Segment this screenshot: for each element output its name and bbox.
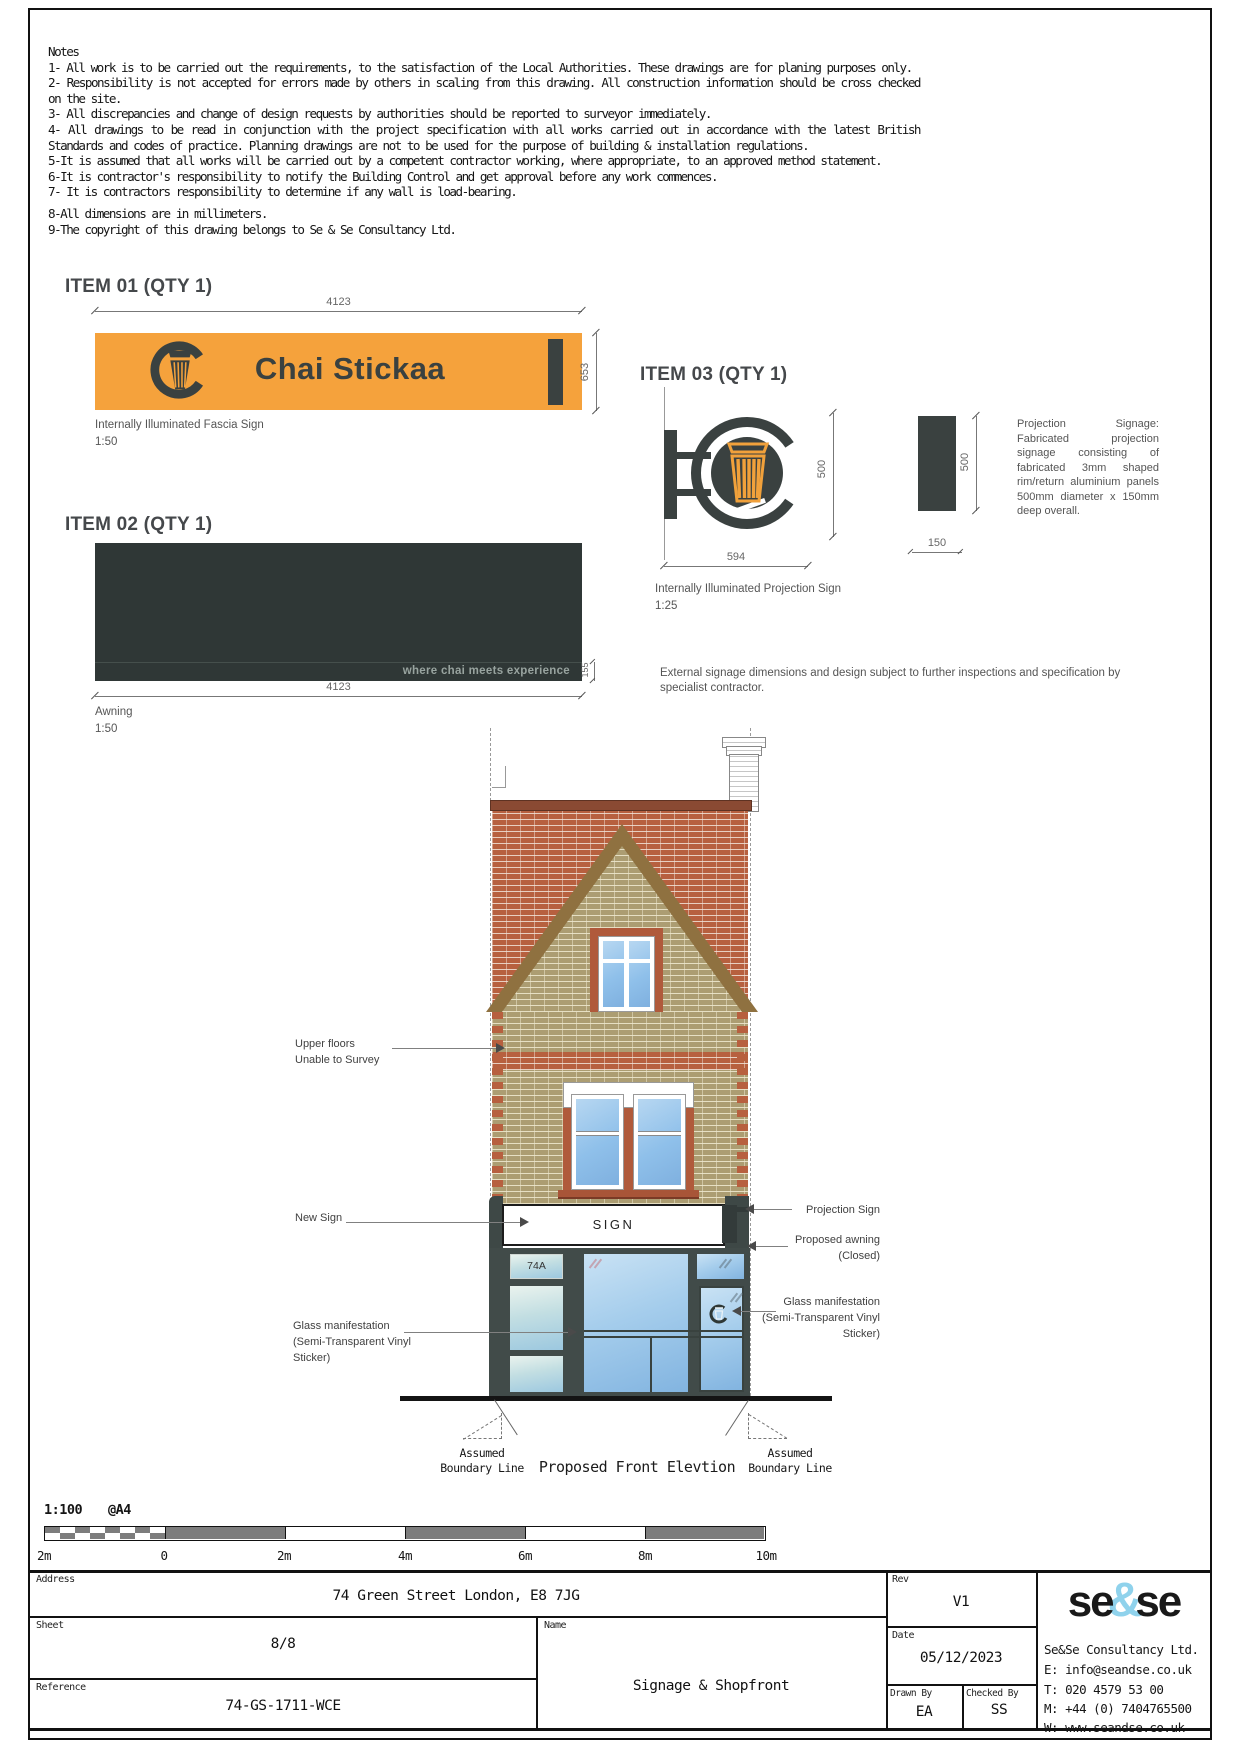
- scale-tick: 6m: [505, 1548, 545, 1563]
- scale-tick: 0: [144, 1548, 184, 1563]
- dim-line: [664, 566, 808, 567]
- gable-window: [598, 936, 655, 1012]
- rev-value: V1: [886, 1594, 1036, 1610]
- red-brick-stripe: [492, 1052, 748, 1070]
- sheet-value: 8/8: [36, 1636, 530, 1652]
- date-label: Date: [892, 1630, 914, 1641]
- door-lower-panel: [510, 1356, 563, 1392]
- glass-divider: [650, 1338, 652, 1392]
- note-line: 4- All drawings to be read in conjunctio…: [48, 122, 920, 153]
- window-sill: [558, 1190, 699, 1199]
- item01-caption: Internally Illuminated Fascia Sign: [95, 419, 264, 431]
- glass-manifestation-label-left: Glass manifestation (Semi-Transparent Vi…: [293, 1318, 443, 1366]
- name-value: Signage & Shopfront: [542, 1678, 880, 1694]
- item01-scale: 1:50: [95, 436, 117, 448]
- dim-line: [596, 333, 597, 411]
- checked-by-value: SS: [962, 1702, 1036, 1718]
- window-left: [571, 1094, 624, 1190]
- fascia-sign: SIGN: [502, 1204, 725, 1246]
- company-mobile: M: +44 (0) 7404765500: [1044, 1701, 1192, 1716]
- item03-side-width-dim: 150: [912, 537, 962, 549]
- drawn-by-label: Drawn By: [890, 1688, 932, 1699]
- item01-height-dim: 653: [579, 350, 591, 394]
- scale-bar: [44, 1526, 766, 1541]
- item02-heading: ITEM 02 (QTY 1): [65, 514, 212, 536]
- item02-caption: Awning: [95, 706, 133, 718]
- note-line: 7- It is contractors responsibility to d…: [48, 184, 920, 200]
- new-sign-label: New Sign: [295, 1210, 435, 1226]
- glass-manifestation-label-right: Glass manifestation (Semi-Transparent Vi…: [700, 1294, 880, 1342]
- note-line: 5-It is assumed that all works will be c…: [48, 153, 920, 169]
- side-panel-drawing: [918, 416, 956, 511]
- dim-line: [95, 696, 582, 697]
- drawing-sheet: Notes 1- All work is to be carried out t…: [0, 0, 1240, 1755]
- company-phone: T: 020 4579 53 00: [1044, 1682, 1163, 1697]
- reference-label: Reference: [36, 1682, 86, 1693]
- scale-tick: 4m: [385, 1548, 425, 1563]
- note-line: 2- Responsibility is not accepted for er…: [48, 75, 920, 106]
- item03-side-height-dim: 500: [959, 440, 971, 484]
- item01-width-dim: 4123: [95, 296, 582, 308]
- scale-tick: 8m: [625, 1548, 665, 1563]
- projection-sign-icon: [686, 412, 808, 534]
- company-name: Se&Se Consultancy Ltd.: [1044, 1642, 1199, 1657]
- quoins-left: [492, 1012, 503, 1204]
- scale-tick: 2m: [264, 1548, 304, 1563]
- item02-width-dim: 4123: [95, 681, 582, 693]
- brand-text: Chai Stickaa: [220, 351, 480, 387]
- item03-circle-dim: 500: [816, 447, 828, 491]
- sign-end-bar: [548, 339, 563, 405]
- item01-heading: ITEM 01 (QTY 1): [65, 276, 212, 298]
- projection-spec: Projection Signage: Fabricated projectio…: [1017, 417, 1159, 519]
- window-right: [633, 1094, 686, 1190]
- awning-tagline: where chai meets experience: [95, 665, 570, 677]
- item03-heading: ITEM 03 (QTY 1): [640, 364, 787, 386]
- boundary-label-right: Assumed Boundary Line: [740, 1446, 840, 1476]
- elevation-title: Proposed Front Elevtion: [530, 1458, 744, 1476]
- company-logo: se&se: [1040, 1572, 1208, 1631]
- scale-tick: 2m: [24, 1548, 64, 1563]
- address-label: Address: [36, 1574, 75, 1585]
- item03-caption: Internally Illuminated Projection Sign: [655, 583, 841, 595]
- item03-width-dim: 594: [664, 551, 808, 563]
- note-line: 6-It is contractor's responsibility to n…: [48, 169, 920, 185]
- note-line: 1- All work is to be carried out the req…: [48, 60, 920, 76]
- scale-tick: 10m: [746, 1548, 786, 1563]
- name-label: Name: [544, 1620, 566, 1631]
- company-email: E: info@seandse.co.uk: [1044, 1662, 1192, 1677]
- date-value: 05/12/2023: [886, 1650, 1036, 1666]
- chai-logo-icon: [150, 339, 212, 401]
- ground-line: [400, 1396, 832, 1401]
- shop-window-glass: [584, 1254, 688, 1392]
- sheet-label: Sheet: [36, 1620, 64, 1631]
- rev-label: Rev: [892, 1574, 909, 1585]
- company-web: W: www.seandse.co.uk: [1044, 1720, 1185, 1735]
- quoins-right: [737, 1012, 748, 1204]
- external-note: External signage dimensions and design s…: [660, 666, 1155, 695]
- dim-line: [976, 416, 977, 511]
- scale-text: 1:100: [44, 1502, 82, 1518]
- dim-line: [833, 413, 834, 537]
- dim-line: [95, 311, 582, 312]
- bracket-bar: [664, 430, 677, 519]
- door-number-panel: 74A: [510, 1254, 563, 1279]
- upper-floors-label: Upper floors Unable to Survey: [295, 1036, 435, 1068]
- note-line: 3- All discrepancies and change of desig…: [48, 106, 920, 122]
- boundary-label-left: Assumed Boundary Line: [432, 1446, 532, 1476]
- checked-by-label: Checked By: [966, 1688, 1018, 1699]
- fascia-sign-drawing: Chai Stickaa: [95, 333, 582, 410]
- item03-scale: 1:25: [655, 600, 677, 612]
- paper-size-text: @A4: [108, 1502, 131, 1518]
- proposed-awning-label: Proposed awning (Closed): [700, 1232, 880, 1264]
- note-line: 9-The copyright of this drawing belongs …: [48, 222, 920, 238]
- address-value: 74 Green Street London, E8 7JG: [36, 1588, 876, 1604]
- note-line: 8-All dimensions are in millimeters.: [48, 206, 920, 222]
- notes-title: Notes: [48, 44, 920, 60]
- parapet-band: [490, 800, 752, 811]
- reference-value: 74-GS-1711-WCE: [36, 1698, 530, 1714]
- door-glass-panel: [510, 1286, 563, 1350]
- item02-strip-dim: 155: [580, 656, 590, 684]
- dim-line: [912, 552, 962, 553]
- awning-drawing: where chai meets experience: [95, 543, 582, 681]
- notes-block: Notes 1- All work is to be carried out t…: [48, 44, 920, 237]
- item02-scale: 1:50: [95, 723, 117, 735]
- drawn-by-value: EA: [886, 1704, 962, 1720]
